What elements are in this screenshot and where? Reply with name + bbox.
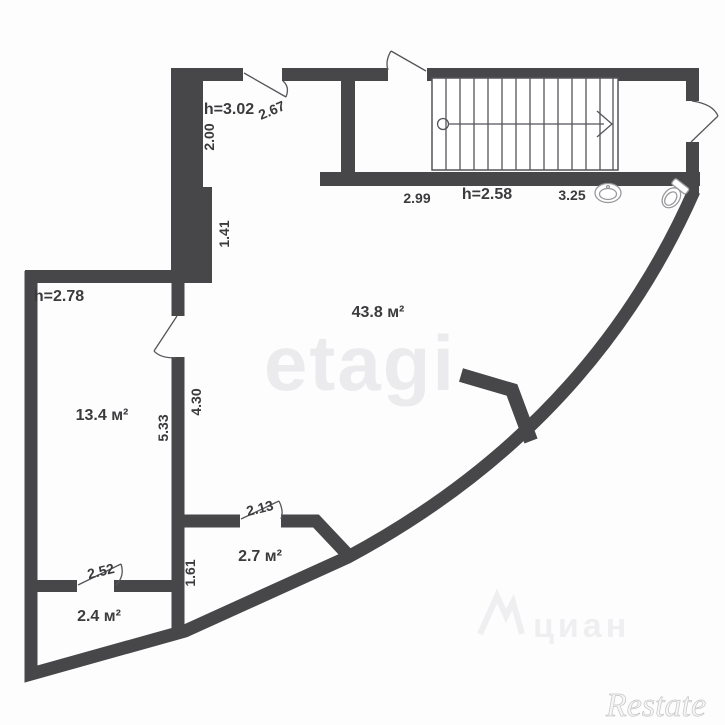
wall-left-column-wide [171,187,212,277]
watermark-restate: Restate [605,687,706,724]
wall-stair-hall-left [341,68,355,179]
floor-plan: etagi циан Restate h=3.02 h=2.58 h=2.78 … [0,0,725,725]
dim-2-67: 2.67 [256,97,288,122]
height-label-top: h=3.02 [204,101,254,118]
watermark-cian-text: циан [533,607,630,645]
door-swing-entry [387,51,426,71]
area-label-small-mid: 2.7 м² [238,548,282,565]
dim-2-00: 2.00 [201,123,217,150]
wall-top-mid [282,68,388,81]
area-label-small-bottom: 2.4 м² [77,608,121,625]
wall-right-lower [686,142,699,194]
walls-outline [31,191,694,674]
door-swing-top-left [244,73,287,97]
wall-left-room-top [25,270,212,283]
area-label-main: 43.8 м² [352,304,405,321]
wall-stair-hall-bottom [320,172,700,186]
dim-5-33: 5.33 [155,414,171,441]
dim-4-30: 4.30 [188,388,204,415]
dim-2-13: 2.13 [245,497,276,519]
watermark-etagi: etagi [264,319,456,407]
dim-1-61: 1.61 [182,559,198,586]
height-label-left: h=2.78 [34,288,84,305]
dim-2-99: 2.99 [403,190,430,206]
wall-outer-boundary [31,191,694,674]
dim-2-52: 2.52 [86,560,117,582]
wall-stub [461,375,531,441]
cian-peak-icon [480,596,522,634]
watermark-cian: циан [480,596,630,645]
height-label-stairs: h=2.58 [462,186,512,203]
wall-right-upper [686,68,699,101]
sink-icon [595,184,621,203]
area-label-left: 13.4 м² [76,407,129,424]
dim-3-25: 3.25 [558,187,585,203]
dim-1-41: 1.41 [216,220,232,247]
door-swing-right [691,101,718,142]
door-swing-left-room [154,316,177,358]
staircase [432,78,618,170]
